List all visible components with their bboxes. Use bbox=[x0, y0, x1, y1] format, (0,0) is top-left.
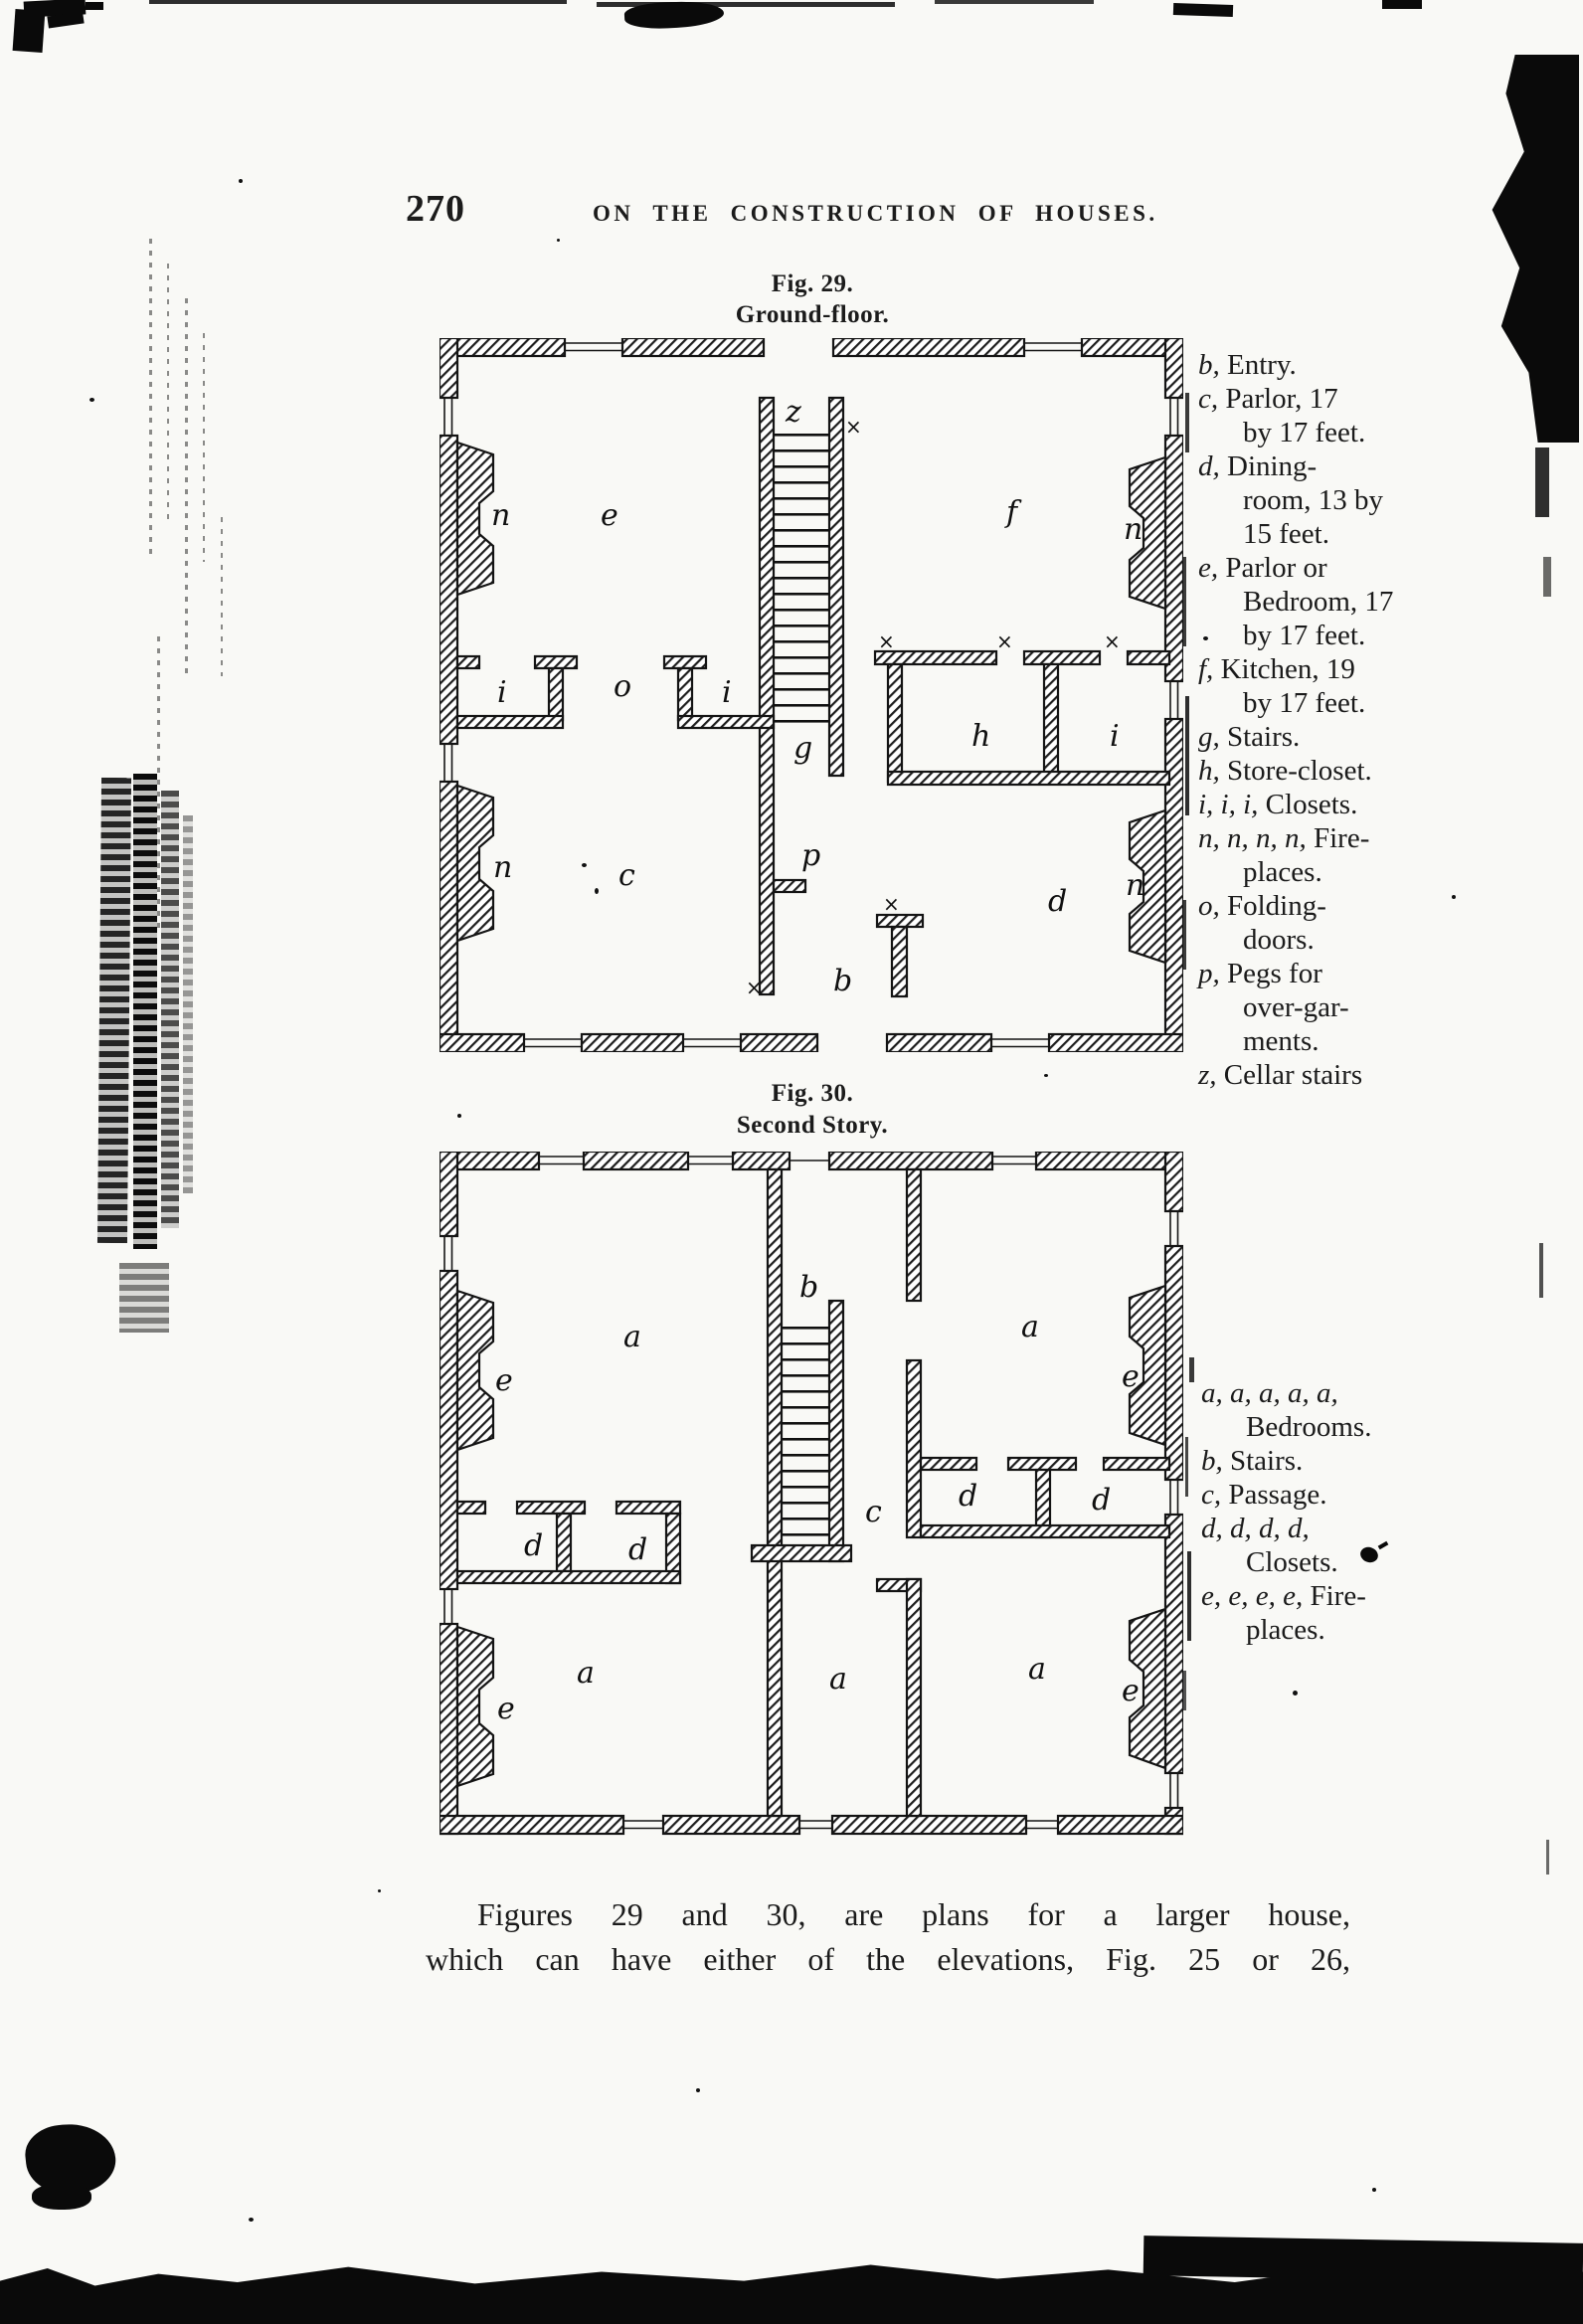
room-label: d bbox=[1048, 884, 1067, 919]
room-label: d bbox=[1092, 1483, 1111, 1518]
legend-line: p, Pegs for bbox=[1198, 957, 1455, 990]
running-title: ON THE CONSTRUCTION OF HOUSES. bbox=[593, 201, 1158, 227]
legend-line: c, Passage. bbox=[1201, 1478, 1458, 1512]
door-mark: × bbox=[878, 629, 895, 653]
room-label: b bbox=[799, 1270, 818, 1305]
fig29-caption-subtitle: Ground-floor. bbox=[440, 301, 1185, 329]
legend-line: o, Folding- bbox=[1198, 889, 1455, 923]
legend-key: f, bbox=[1198, 653, 1213, 685]
room-label: e bbox=[495, 1363, 513, 1398]
legend-line: a, a, a, a, a, bbox=[1201, 1376, 1458, 1410]
legend-key: a, a, a, a, a, bbox=[1201, 1377, 1338, 1409]
room-label: d bbox=[628, 1532, 647, 1567]
legend-key: n, n, n, n, bbox=[1198, 822, 1307, 854]
fig29-legend: b, Entry.c, Parlor, 17by 17 feet.d, Dini… bbox=[1198, 348, 1455, 1092]
legend-key: d, d, d, d, bbox=[1201, 1513, 1310, 1544]
legend-key: p, bbox=[1198, 958, 1220, 989]
legend-key: c, bbox=[1201, 1479, 1221, 1511]
legend-key: c, bbox=[1198, 383, 1218, 415]
room-label: z bbox=[785, 395, 801, 430]
legend-line: d, d, d, d, bbox=[1201, 1512, 1458, 1545]
legend-key: h, bbox=[1198, 755, 1220, 787]
room-label: o bbox=[614, 669, 631, 704]
legend-line: b, Stairs. bbox=[1201, 1444, 1458, 1478]
legend-line: by 17 feet. bbox=[1198, 619, 1455, 652]
book-page: 270 ON THE CONSTRUCTION OF HOUSES. Fig. … bbox=[0, 0, 1583, 2324]
legend-line: Closets. bbox=[1201, 1545, 1458, 1579]
room-label: i bbox=[722, 675, 732, 710]
fig29-plan-drawing: nezfnioighincpbdn ×××××× bbox=[440, 338, 1183, 1052]
legend-line: e, Parlor or bbox=[1198, 551, 1455, 585]
room-label: i bbox=[1110, 719, 1120, 754]
room-label: e bbox=[1122, 1674, 1140, 1708]
paragraph-line-2: which can have either of the elevations,… bbox=[426, 1937, 1350, 1982]
legend-line: z, Cellar stairs bbox=[1198, 1058, 1455, 1092]
legend-line: b, Entry. bbox=[1198, 348, 1455, 382]
room-label: a bbox=[623, 1320, 641, 1354]
door-mark: × bbox=[1104, 629, 1121, 653]
room-label: f bbox=[1004, 495, 1022, 530]
door-mark: × bbox=[746, 976, 763, 999]
legend-key: e, e, e, e, bbox=[1201, 1580, 1303, 1612]
legend-line: d, Dining- bbox=[1198, 449, 1455, 483]
legend-line: h, Store-closet. bbox=[1198, 754, 1455, 788]
room-label: n bbox=[491, 498, 510, 533]
legend-line: ments. bbox=[1198, 1024, 1455, 1058]
legend-key: e, bbox=[1198, 552, 1218, 584]
fig30-legend: a, a, a, a, a, Bedrooms.b, Stairs.c, Pas… bbox=[1201, 1376, 1458, 1647]
legend-line: Bedrooms. bbox=[1201, 1410, 1458, 1444]
room-label: a bbox=[1021, 1310, 1039, 1344]
room-label: d bbox=[524, 1528, 543, 1563]
legend-key: d, bbox=[1198, 450, 1220, 482]
room-label: a bbox=[829, 1662, 847, 1697]
legend-line: by 17 feet. bbox=[1198, 416, 1455, 449]
room-label: i bbox=[497, 675, 507, 710]
legend-key: g, bbox=[1198, 721, 1220, 753]
legend-key: b, bbox=[1198, 349, 1220, 381]
fig30-caption-subtitle: Second Story. bbox=[440, 1112, 1185, 1140]
legend-key: i, i, i, bbox=[1198, 789, 1258, 820]
legend-key: o, bbox=[1198, 890, 1220, 922]
room-label: g bbox=[793, 731, 812, 766]
room-label: d bbox=[959, 1479, 977, 1514]
legend-line: places. bbox=[1201, 1613, 1458, 1647]
legend-line: e, e, e, e, Fire- bbox=[1201, 1579, 1458, 1613]
legend-line: f, Kitchen, 19 bbox=[1198, 652, 1455, 686]
room-label: p bbox=[801, 838, 820, 873]
room-label: b bbox=[833, 964, 852, 998]
room-label: h bbox=[971, 719, 990, 754]
legend-line: places. bbox=[1198, 855, 1455, 889]
legend-key: b, bbox=[1201, 1445, 1223, 1477]
legend-key: z, bbox=[1198, 1059, 1217, 1091]
fig30-caption-title: Fig. 30. bbox=[440, 1080, 1185, 1108]
fig29-stairs bbox=[774, 430, 829, 726]
legend-line: i, i, i, Closets. bbox=[1198, 788, 1455, 821]
body-paragraph: Figures 29 and 30, are plans for a large… bbox=[426, 1892, 1350, 1982]
legend-line: c, Parlor, 17 bbox=[1198, 382, 1455, 416]
room-label: a bbox=[577, 1656, 595, 1691]
door-mark: × bbox=[883, 892, 900, 916]
room-label: e bbox=[1122, 1359, 1140, 1394]
room-label: e bbox=[497, 1692, 515, 1726]
fig30-stairs bbox=[782, 1323, 829, 1545]
fig29-caption-title: Fig. 29. bbox=[440, 270, 1185, 298]
room-label: n bbox=[1126, 868, 1144, 903]
legend-line: 15 feet. bbox=[1198, 517, 1455, 551]
door-mark: × bbox=[845, 415, 862, 439]
room-label: c bbox=[618, 858, 635, 893]
legend-line: room, 13 by bbox=[1198, 483, 1455, 517]
page-number: 270 bbox=[406, 187, 465, 231]
legend-line: doors. bbox=[1198, 923, 1455, 957]
paragraph-line-1: Figures 29 and 30, are plans for a large… bbox=[426, 1892, 1350, 1937]
room-label: e bbox=[601, 498, 618, 533]
room-label: n bbox=[1124, 512, 1143, 547]
door-mark: × bbox=[996, 629, 1013, 653]
legend-line: g, Stairs. bbox=[1198, 720, 1455, 754]
room-label: c bbox=[865, 1495, 882, 1529]
legend-line: over-gar- bbox=[1198, 990, 1455, 1024]
legend-line: n, n, n, n, Fire- bbox=[1198, 821, 1455, 855]
legend-line: Bedroom, 17 bbox=[1198, 585, 1455, 619]
legend-line: by 17 feet. bbox=[1198, 686, 1455, 720]
fig30-plan-drawing: eabcaeddddeaaae bbox=[440, 1152, 1183, 1838]
room-label: n bbox=[493, 850, 512, 885]
room-label: a bbox=[1028, 1652, 1046, 1687]
